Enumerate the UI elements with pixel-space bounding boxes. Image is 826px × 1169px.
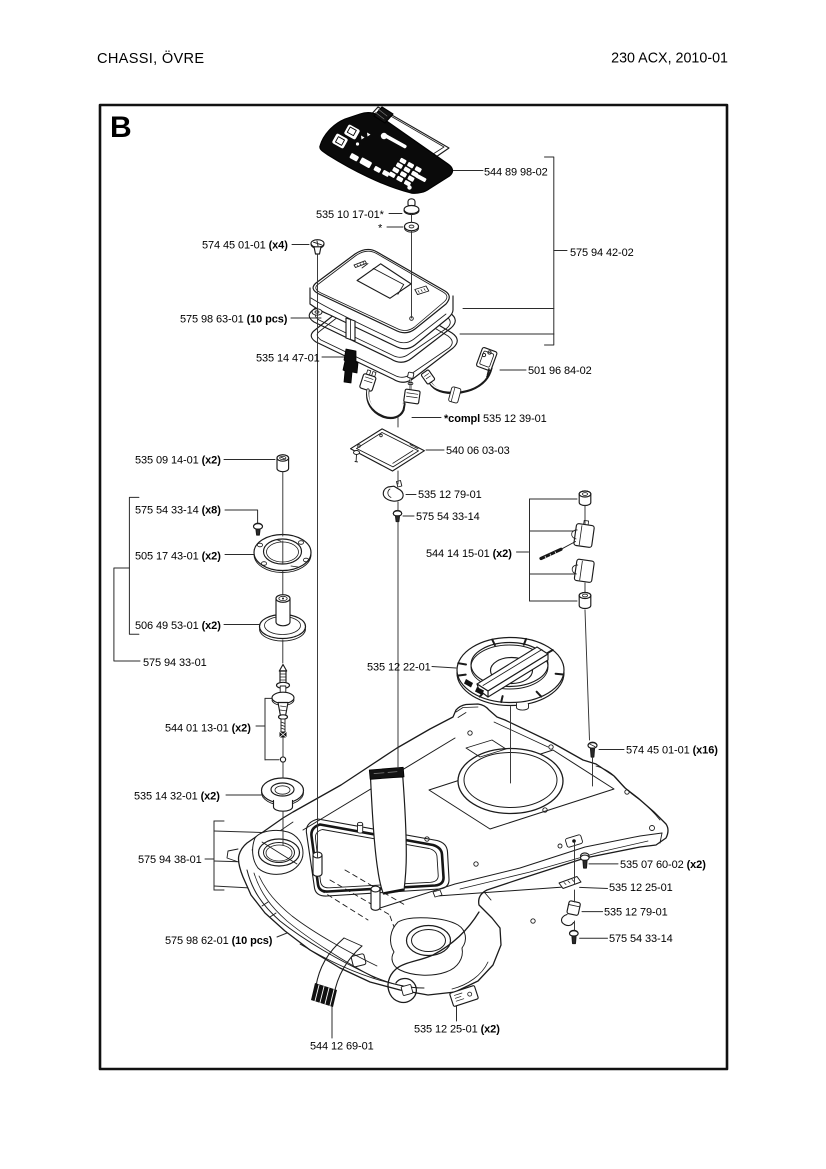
svg-text:544 12 69-01: 544 12 69-01: [310, 1041, 374, 1053]
svg-text:575 98 62-01 (10 pcs): 575 98 62-01 (10 pcs): [165, 935, 273, 947]
svg-text:*compl 535 12 39-01: *compl 535 12 39-01: [444, 413, 547, 425]
svg-text:535 12 79-01: 535 12 79-01: [418, 489, 482, 501]
svg-text:575 94 38-01: 575 94 38-01: [138, 854, 202, 866]
svg-text:535 12 25-01 (x2): 535 12 25-01 (x2): [414, 1024, 500, 1036]
svg-text:575 94 42-02: 575 94 42-02: [570, 247, 634, 259]
svg-text:575 98 63-01 (10 pcs): 575 98 63-01 (10 pcs): [180, 314, 288, 326]
svg-text:535 14 32-01 (x2): 535 14 32-01 (x2): [134, 791, 220, 803]
svg-text:575 94 33-01: 575 94 33-01: [143, 657, 207, 669]
svg-text:575 54 33-14 (x8): 575 54 33-14 (x8): [135, 505, 221, 517]
svg-text:575 54 33-14: 575 54 33-14: [609, 933, 673, 945]
svg-text:535 07 60-02 (x2): 535 07 60-02 (x2): [620, 859, 706, 871]
svg-text:535 12 22-01: 535 12 22-01: [367, 662, 431, 674]
svg-text:535 12 79-01: 535 12 79-01: [604, 907, 668, 919]
svg-text:540 06 03-03: 540 06 03-03: [446, 445, 510, 457]
svg-text:535 12 25-01: 535 12 25-01: [609, 882, 673, 894]
svg-text:505 17 43-01 (x2): 505 17 43-01 (x2): [135, 551, 221, 563]
svg-text:535 10 17-01*: 535 10 17-01*: [316, 209, 385, 221]
svg-text:B: B: [110, 111, 132, 144]
svg-text:544 01 13-01 (x2): 544 01 13-01 (x2): [165, 723, 251, 735]
svg-text:544 89 98-02: 544 89 98-02: [484, 167, 548, 179]
svg-text:574 45 01-01 (x16): 574 45 01-01 (x16): [626, 745, 718, 757]
svg-text:501 96 84-02: 501 96 84-02: [528, 365, 592, 377]
svg-text:544 14 15-01 (x2): 544 14 15-01 (x2): [426, 548, 512, 560]
svg-text:CHASSI, ÖVRE: CHASSI, ÖVRE: [97, 49, 204, 67]
svg-text:574 45 01-01 (x4): 574 45 01-01 (x4): [202, 240, 288, 252]
svg-text:230 ACX, 2010-01: 230 ACX, 2010-01: [611, 51, 728, 67]
svg-text:506 49 53-01 (x2): 506 49 53-01 (x2): [135, 620, 221, 632]
svg-text:575 54 33-14: 575 54 33-14: [416, 511, 480, 523]
svg-text:535 14 47-01: 535 14 47-01: [256, 353, 320, 365]
svg-text:535 09 14-01 (x2): 535 09 14-01 (x2): [135, 455, 221, 467]
